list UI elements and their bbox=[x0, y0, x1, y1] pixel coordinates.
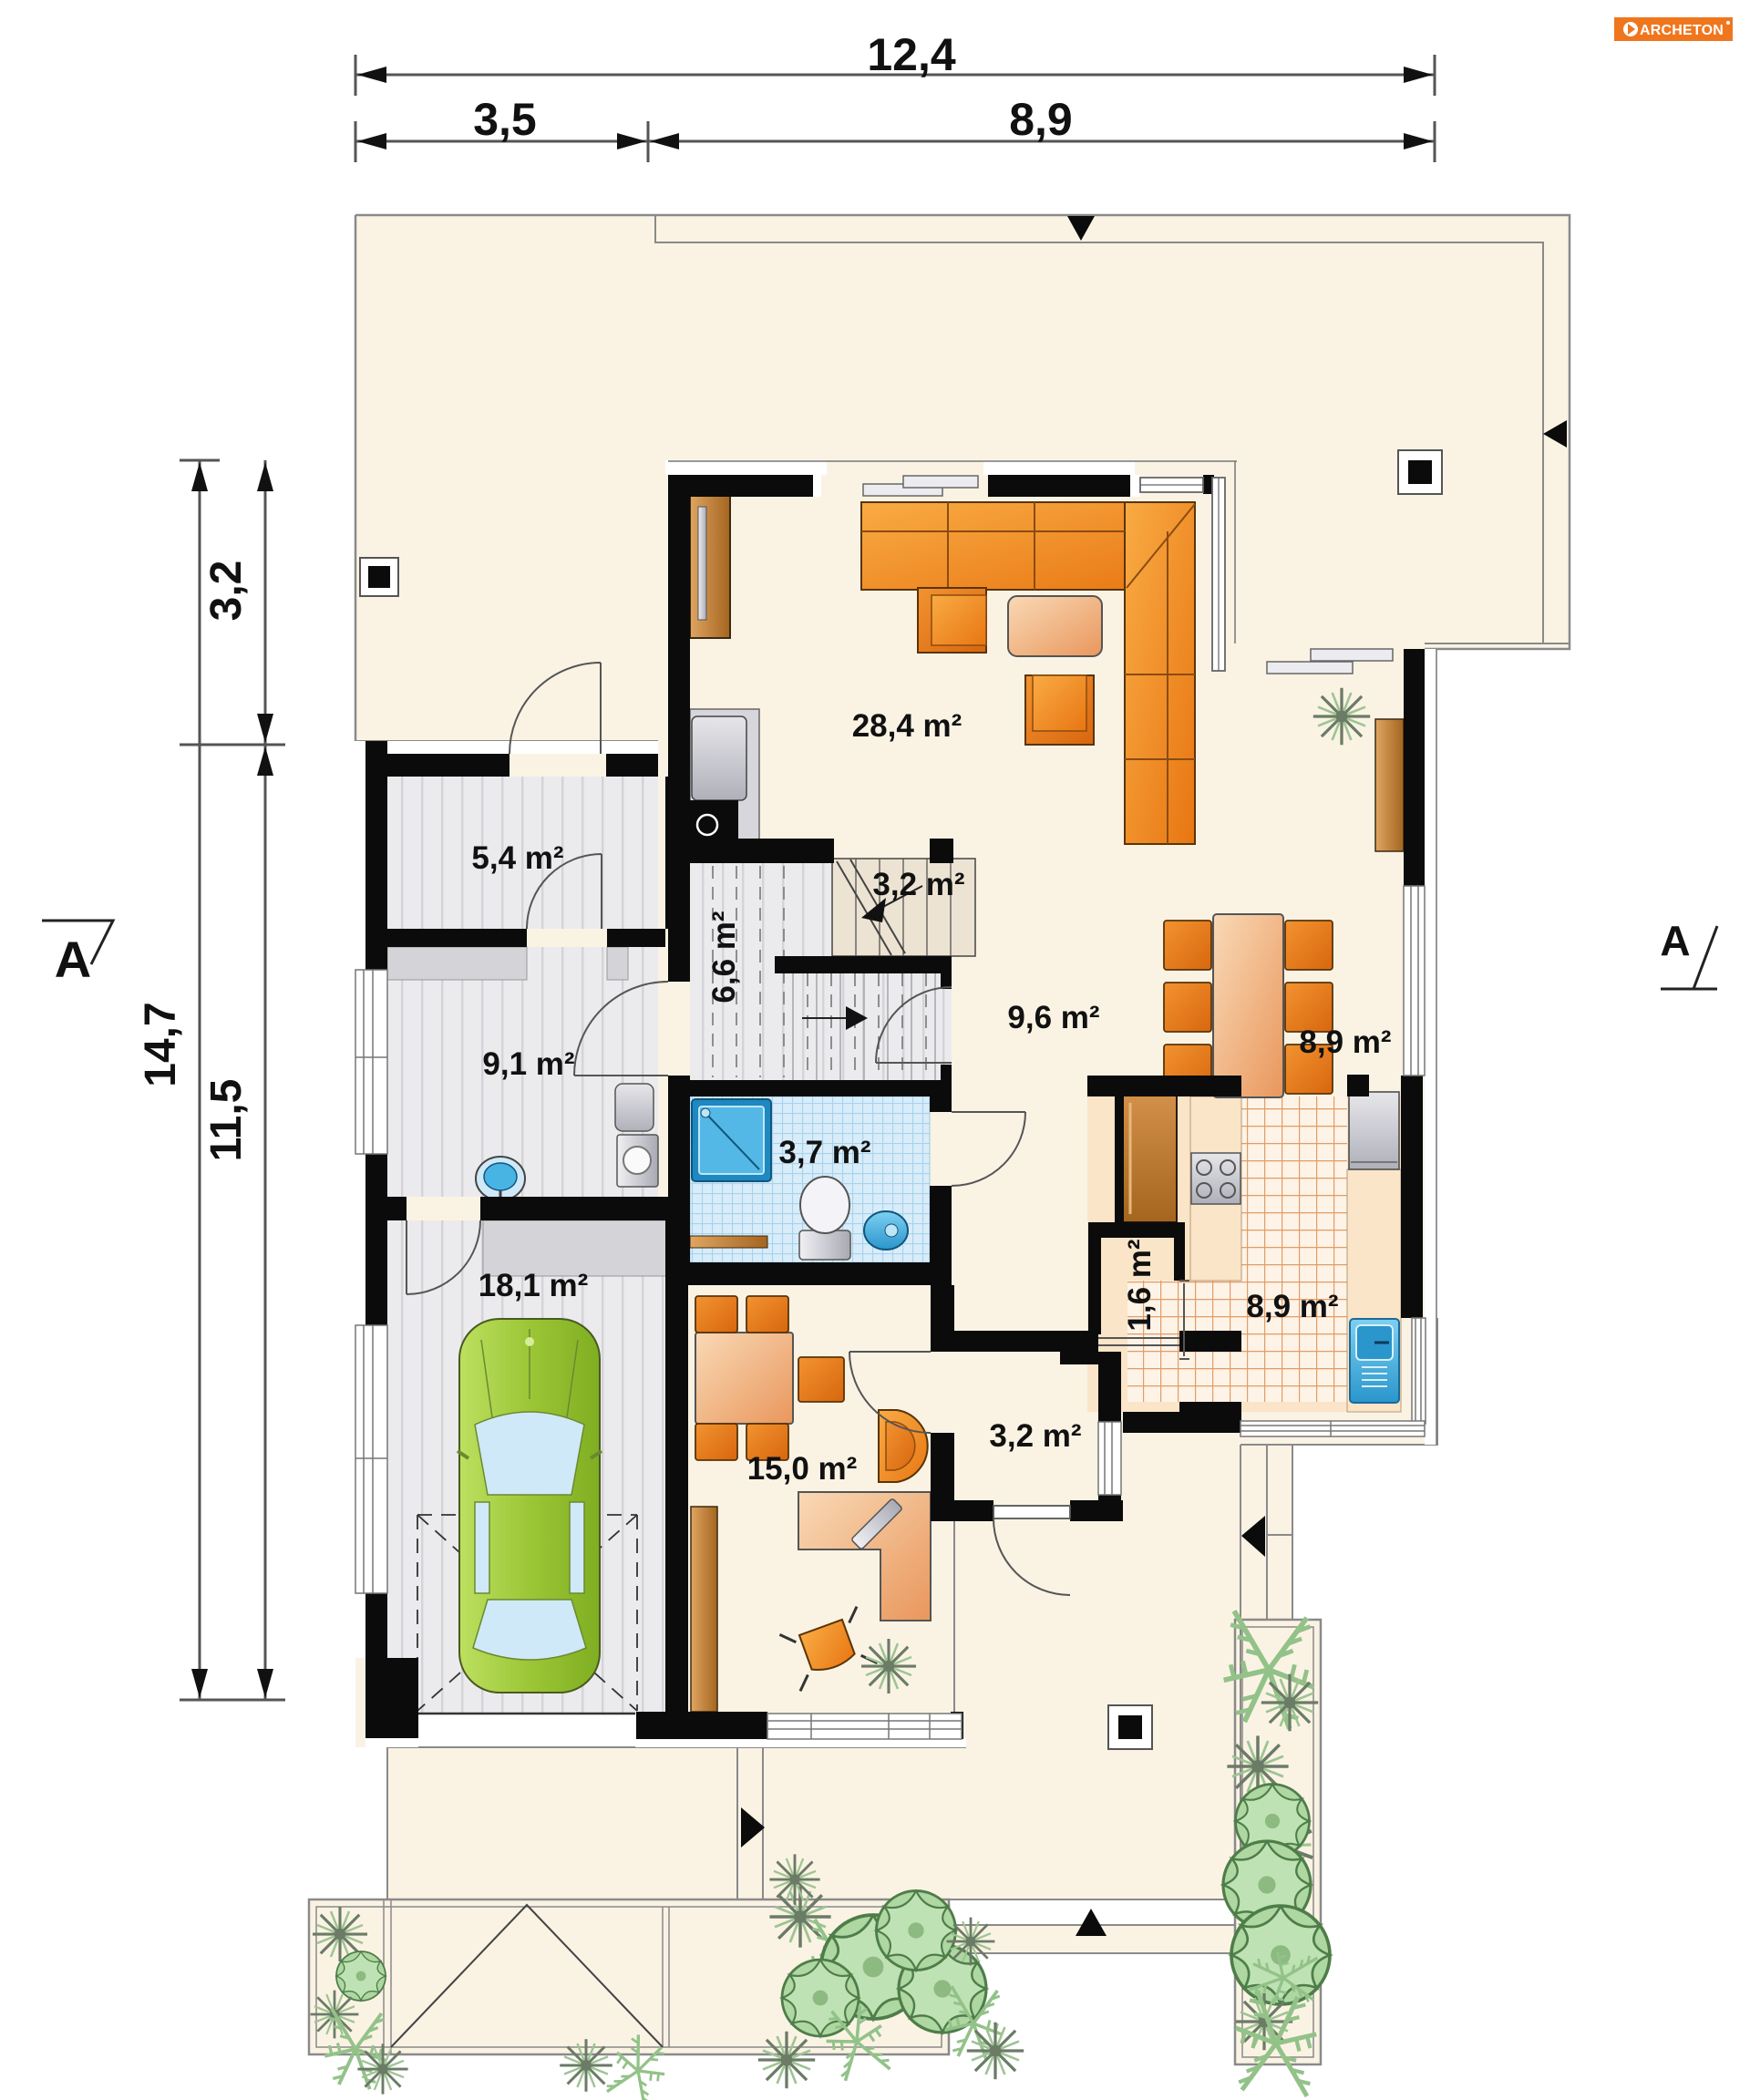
svg-text:3,7 m²: 3,7 m² bbox=[778, 1135, 870, 1170]
svg-text:11,5: 11,5 bbox=[202, 1079, 251, 1162]
svg-text:3,2 m²: 3,2 m² bbox=[989, 1418, 1081, 1454]
svg-text:6,6 m²: 6,6 m² bbox=[706, 911, 742, 1003]
svg-text:A: A bbox=[1660, 917, 1690, 964]
svg-text:15,0 m²: 15,0 m² bbox=[747, 1451, 858, 1487]
svg-text:18,1 m²: 18,1 m² bbox=[479, 1268, 589, 1303]
svg-text:9,6 m²: 9,6 m² bbox=[1007, 1000, 1099, 1035]
svg-text:3,5: 3,5 bbox=[473, 94, 537, 145]
svg-text:28,4 m²: 28,4 m² bbox=[852, 708, 962, 744]
svg-text:9,1 m²: 9,1 m² bbox=[482, 1046, 574, 1082]
svg-text:A: A bbox=[55, 931, 91, 988]
svg-text:5,4 m²: 5,4 m² bbox=[471, 840, 563, 876]
svg-text:ARCHETON: ARCHETON bbox=[1640, 23, 1724, 38]
svg-text:8,9 m²: 8,9 m² bbox=[1246, 1289, 1338, 1324]
svg-text:12,4: 12,4 bbox=[867, 29, 956, 80]
svg-text:3,2 m²: 3,2 m² bbox=[872, 867, 964, 902]
svg-text:3,2: 3,2 bbox=[202, 561, 251, 622]
svg-text:8,9 m²: 8,9 m² bbox=[1299, 1024, 1391, 1060]
svg-text:1,6 m²: 1,6 m² bbox=[1122, 1239, 1158, 1331]
svg-text:14,7: 14,7 bbox=[137, 1002, 185, 1086]
svg-text:8,9: 8,9 bbox=[1009, 94, 1073, 145]
